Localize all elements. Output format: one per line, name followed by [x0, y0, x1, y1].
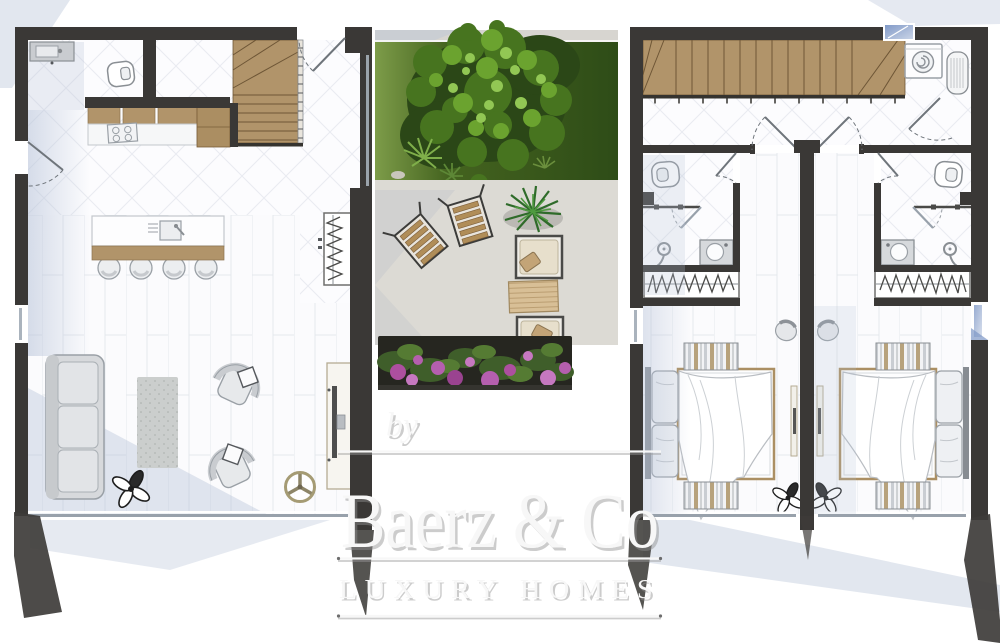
- staircase: [233, 40, 303, 147]
- lounge-chair: [516, 236, 562, 278]
- watermark-tagline: LUXURY HOMES: [339, 574, 661, 604]
- outdoor-mat: [508, 280, 558, 313]
- stove-icon: [107, 123, 137, 143]
- kitchen-counter: [88, 107, 230, 147]
- sliding-glass-door: [28, 511, 348, 517]
- skylight-icon: [884, 24, 914, 40]
- tv-console: [327, 363, 351, 489]
- watermark-brand: Baerz & Co: [341, 477, 659, 564]
- water-heater-icon: [947, 52, 968, 94]
- toilet-icon: [107, 61, 136, 88]
- washing-machine-icon: [905, 44, 942, 78]
- window-icon: [632, 308, 641, 344]
- shadow: [28, 110, 90, 356]
- floor-plan-svg: by by Baerz & Co Baerz & Co LUXURY HOMES…: [0, 0, 1000, 643]
- island-sink-icon: [160, 221, 181, 240]
- rock-icon: [391, 171, 405, 179]
- floor-plan-image: by by Baerz & Co Baerz & Co LUXURY HOMES…: [0, 0, 1000, 643]
- watermark-prefix: by: [386, 407, 419, 444]
- shadow: [643, 155, 685, 295]
- courtyard: [375, 20, 618, 390]
- sofa: [46, 355, 104, 499]
- window-icon: [971, 302, 988, 340]
- ceiling-fan-icon: [286, 473, 315, 502]
- flower-bed: [377, 336, 574, 390]
- washbasin-icon: [30, 42, 74, 65]
- staircase: [643, 40, 905, 104]
- rug: [137, 377, 178, 468]
- shadow: [814, 306, 856, 514]
